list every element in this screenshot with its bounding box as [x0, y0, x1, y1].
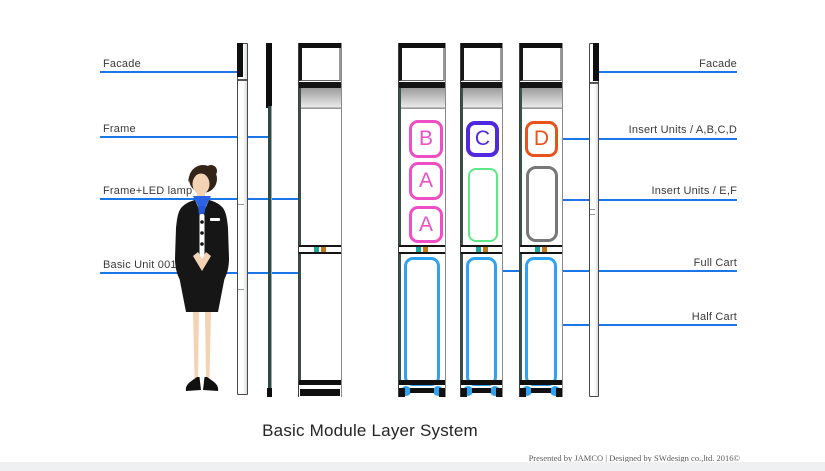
latch-indicator-teal: [314, 247, 319, 252]
base-foot-right: [496, 388, 502, 397]
callout-line-half-cart: [548, 324, 737, 326]
module-facade-box: [520, 48, 562, 81]
latch-indicator-teal: [535, 247, 540, 252]
base-bar: [520, 380, 562, 385]
half-cart-outline: [525, 257, 557, 386]
label-insert-units-abcd: Insert Units / A,B,C,D: [537, 124, 737, 136]
diagram-canvas: Facade Frame Frame+LED lamp Basic Unit 0…: [0, 0, 825, 471]
latch-indicator-teal: [416, 247, 421, 252]
facade-tick: [590, 214, 595, 215]
facade-top-cap: [593, 43, 599, 81]
label-insert-units-ef: Insert Units / E,F: [537, 185, 737, 197]
frame-side: [266, 43, 273, 397]
base-foot-right: [439, 388, 445, 397]
module-divider: [299, 108, 341, 109]
cart-bay: [520, 254, 562, 380]
module-latch-band: [520, 245, 562, 254]
module-inserts-c: C: [460, 43, 503, 397]
module-divider: [520, 108, 562, 109]
module-facade-box: [461, 48, 502, 81]
base-kick-plate: [300, 389, 340, 396]
frame-bottom-tip: [267, 388, 272, 397]
diagram-title: Basic Module Layer System: [0, 421, 740, 441]
module-latch-band: [299, 245, 341, 254]
module-facade-box: [399, 48, 445, 81]
insert-unit-c: C: [466, 121, 499, 157]
module-divider: [461, 108, 502, 109]
cart-bay: [461, 254, 502, 380]
full-cart-outline: [466, 257, 497, 386]
module-latch-band: [399, 245, 445, 254]
module-base: [399, 380, 445, 397]
insert-unit-b: B: [409, 120, 443, 158]
module-base: [461, 380, 502, 397]
facade-tick: [238, 204, 244, 205]
label-facade-left: Facade: [103, 58, 141, 70]
module-led-band: [461, 88, 502, 108]
module-led-band: [299, 88, 341, 108]
callout-line-facade-left: [100, 71, 240, 73]
frame-rail: [268, 106, 272, 389]
label-half-cart: Half Cart: [537, 311, 737, 323]
label-full-cart: Full Cart: [537, 257, 737, 269]
full-cart-outline: [404, 257, 440, 386]
base-axle-bar: [472, 388, 491, 393]
base-foot-right: [556, 388, 562, 397]
latch-indicator-orange: [542, 247, 547, 252]
facade-tick: [590, 209, 595, 210]
module-inserts-baa: B A A: [398, 43, 446, 397]
facade-top-cap: [237, 43, 243, 77]
callout-line-facade-right: [595, 71, 737, 73]
insert-unit-a1: A: [409, 162, 443, 200]
insert-unit-f-gray: [526, 166, 558, 242]
latch-indicator-orange: [321, 247, 326, 252]
module-base: [299, 380, 341, 397]
base-bar: [461, 380, 502, 385]
facade-notch: [590, 82, 598, 84]
module-divider: [399, 108, 445, 109]
module-frame-edge: [299, 88, 301, 380]
callout-line-insert-units-abcd: [545, 138, 737, 140]
basic-unit-001-module: [298, 43, 342, 397]
footer-strip: [0, 462, 825, 471]
facade-side-right: [589, 43, 599, 397]
insert-unit-a2: A: [409, 206, 443, 243]
latch-indicator-orange: [483, 247, 488, 252]
facade-side-left: [237, 43, 248, 395]
base-bar: [399, 380, 445, 385]
module-latch-band: [461, 245, 502, 254]
latch-indicator-teal: [476, 247, 481, 252]
module-facade-box: [299, 48, 341, 81]
facade-notch: [238, 79, 247, 81]
frame-top-block: [266, 43, 272, 108]
base-axle-bar: [410, 388, 434, 393]
cart-bay: [399, 254, 445, 380]
base-axle-bar: [531, 388, 551, 393]
base-foot-left: [461, 388, 467, 397]
module-base: [520, 380, 562, 397]
base-bar: [299, 380, 341, 385]
insert-unit-e-green: [468, 168, 498, 242]
insert-unit-d: D: [525, 121, 558, 157]
base-foot-left: [520, 388, 526, 397]
base-foot-left: [399, 388, 405, 397]
latch-indicator-orange: [423, 247, 428, 252]
flight-attendant-figure: [164, 162, 240, 398]
module-led-band: [399, 88, 445, 108]
module-inserts-d: D: [519, 43, 563, 397]
facade-tick: [238, 289, 244, 290]
callout-line-insert-units-ef: [549, 199, 737, 201]
label-frame: Frame: [103, 123, 136, 135]
module-led-band: [520, 88, 562, 108]
label-facade-right: Facade: [537, 58, 737, 70]
